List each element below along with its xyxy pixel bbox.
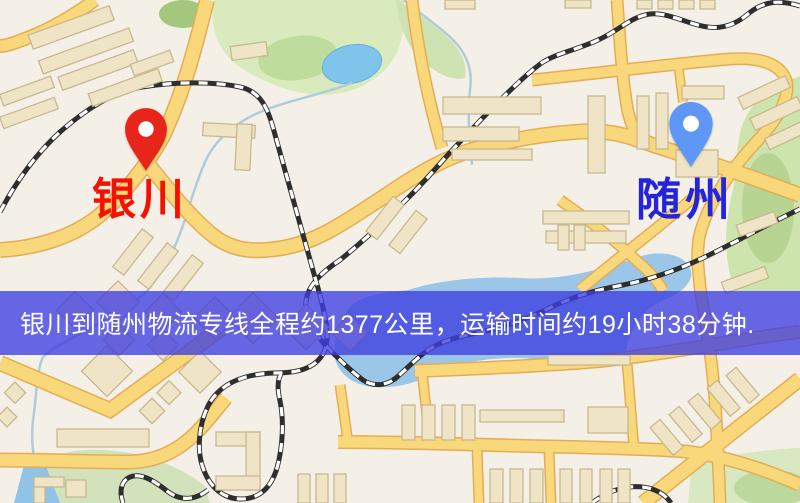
route-info-text: 银川到随州物流专线全程约1377公里，运输时间约19小时38分钟.: [0, 305, 755, 341]
origin-city-label: 银川: [92, 178, 188, 222]
map-background: [0, 0, 800, 503]
origin-pin-icon: [124, 108, 168, 172]
destination-pin-icon: [668, 102, 714, 168]
map-image: 银川 随州 银川到随州物流专线全程约1377公里，运输时间约19小时38分钟.: [0, 0, 800, 503]
destination-city-label: 随州: [636, 177, 734, 222]
route-info-banner: 银川到随州物流专线全程约1377公里，运输时间约19小时38分钟.: [0, 291, 800, 355]
